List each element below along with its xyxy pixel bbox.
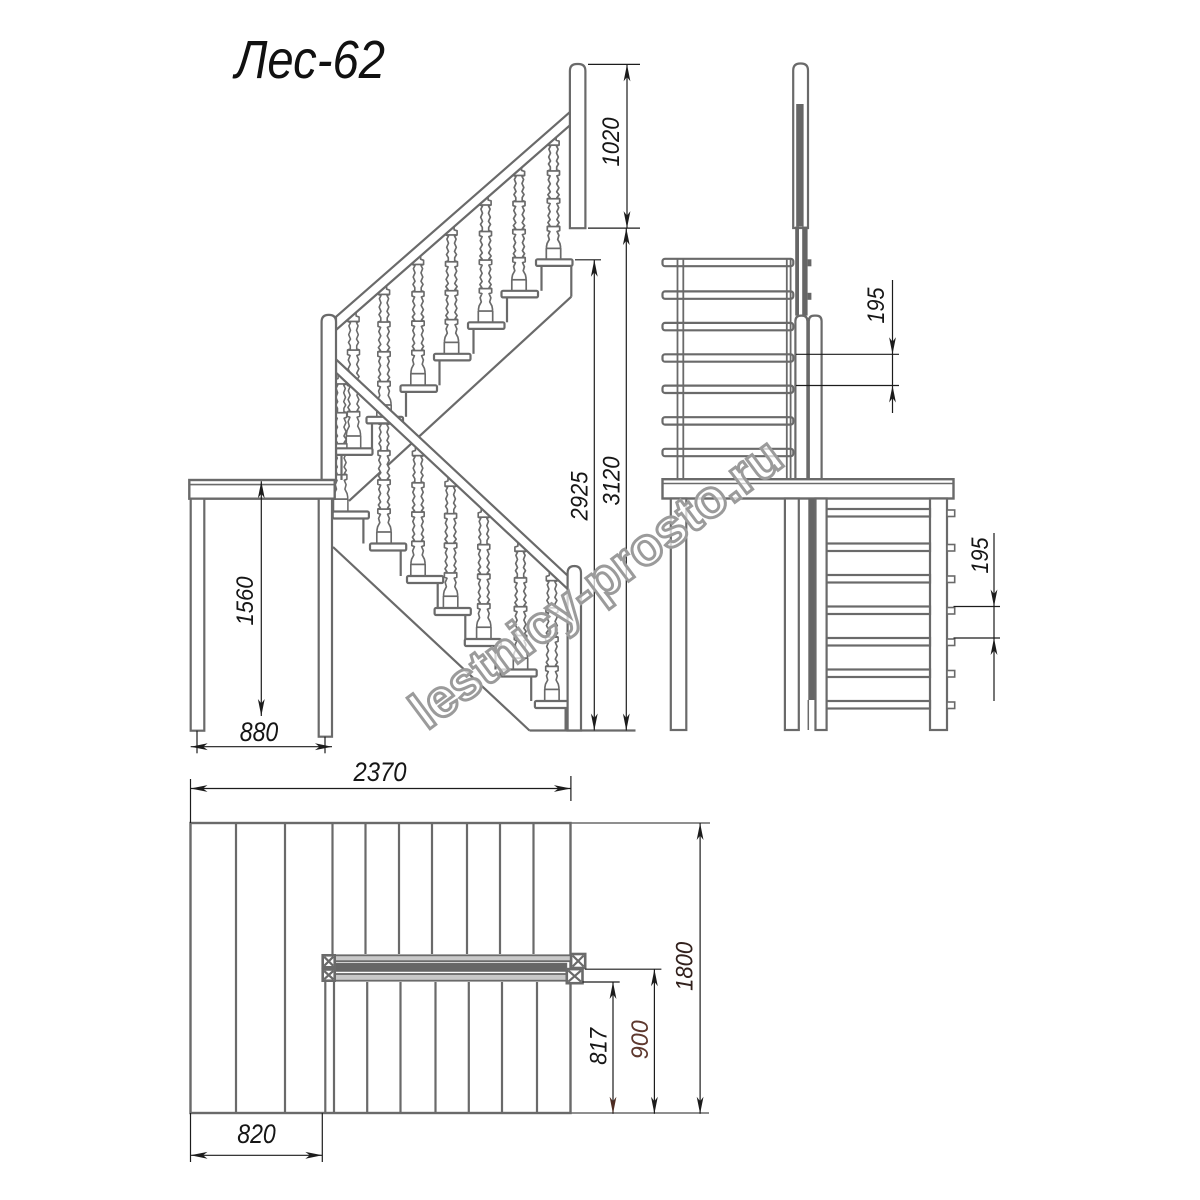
svg-text:195: 195 [967,537,994,573]
svg-text:195: 195 [863,287,890,323]
svg-text:820: 820 [237,1119,276,1149]
svg-text:Лес-62: Лес-62 [232,30,385,90]
svg-text:1800: 1800 [671,942,698,991]
svg-text:817: 817 [586,1027,613,1065]
svg-text:3120: 3120 [599,456,626,505]
svg-text:1020: 1020 [598,117,625,166]
svg-text:2925: 2925 [567,471,594,521]
svg-text:2370: 2370 [353,757,407,787]
svg-text:880: 880 [240,717,279,747]
svg-text:900: 900 [627,1020,654,1059]
svg-text:1560: 1560 [232,576,259,625]
